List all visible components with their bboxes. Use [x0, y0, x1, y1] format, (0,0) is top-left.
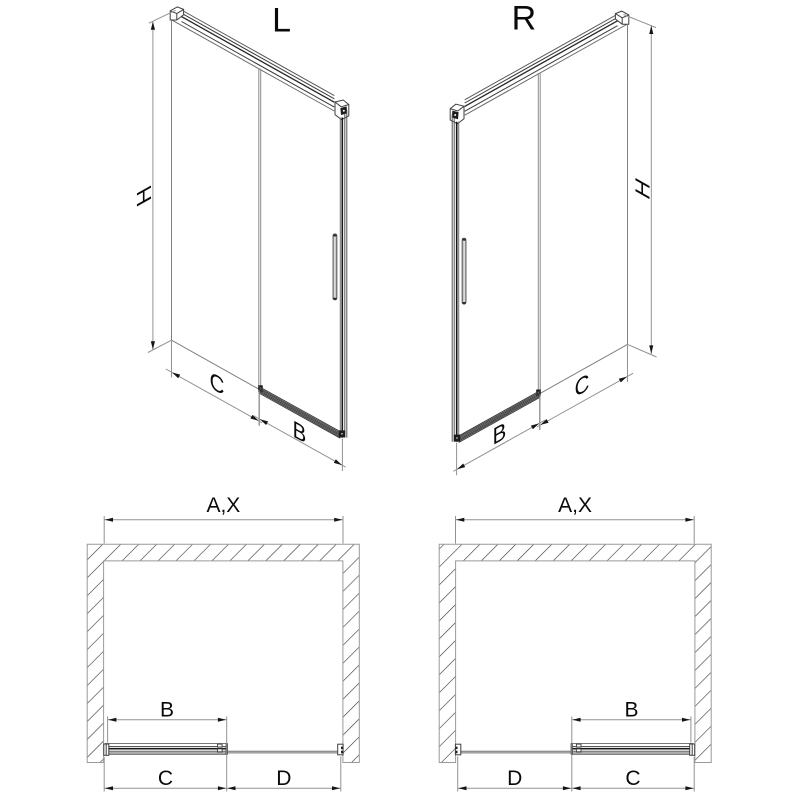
- svg-text:C: C: [625, 767, 640, 790]
- svg-text:A,X: A,X: [206, 494, 240, 517]
- svg-text:R: R: [512, 0, 537, 37]
- svg-text:L: L: [272, 2, 291, 40]
- svg-text:B: B: [160, 699, 174, 722]
- svg-text:B: B: [624, 699, 638, 722]
- svg-text:A,X: A,X: [558, 494, 592, 517]
- svg-text:C: C: [158, 767, 173, 790]
- svg-text:D: D: [507, 767, 522, 790]
- svg-text:D: D: [276, 767, 291, 790]
